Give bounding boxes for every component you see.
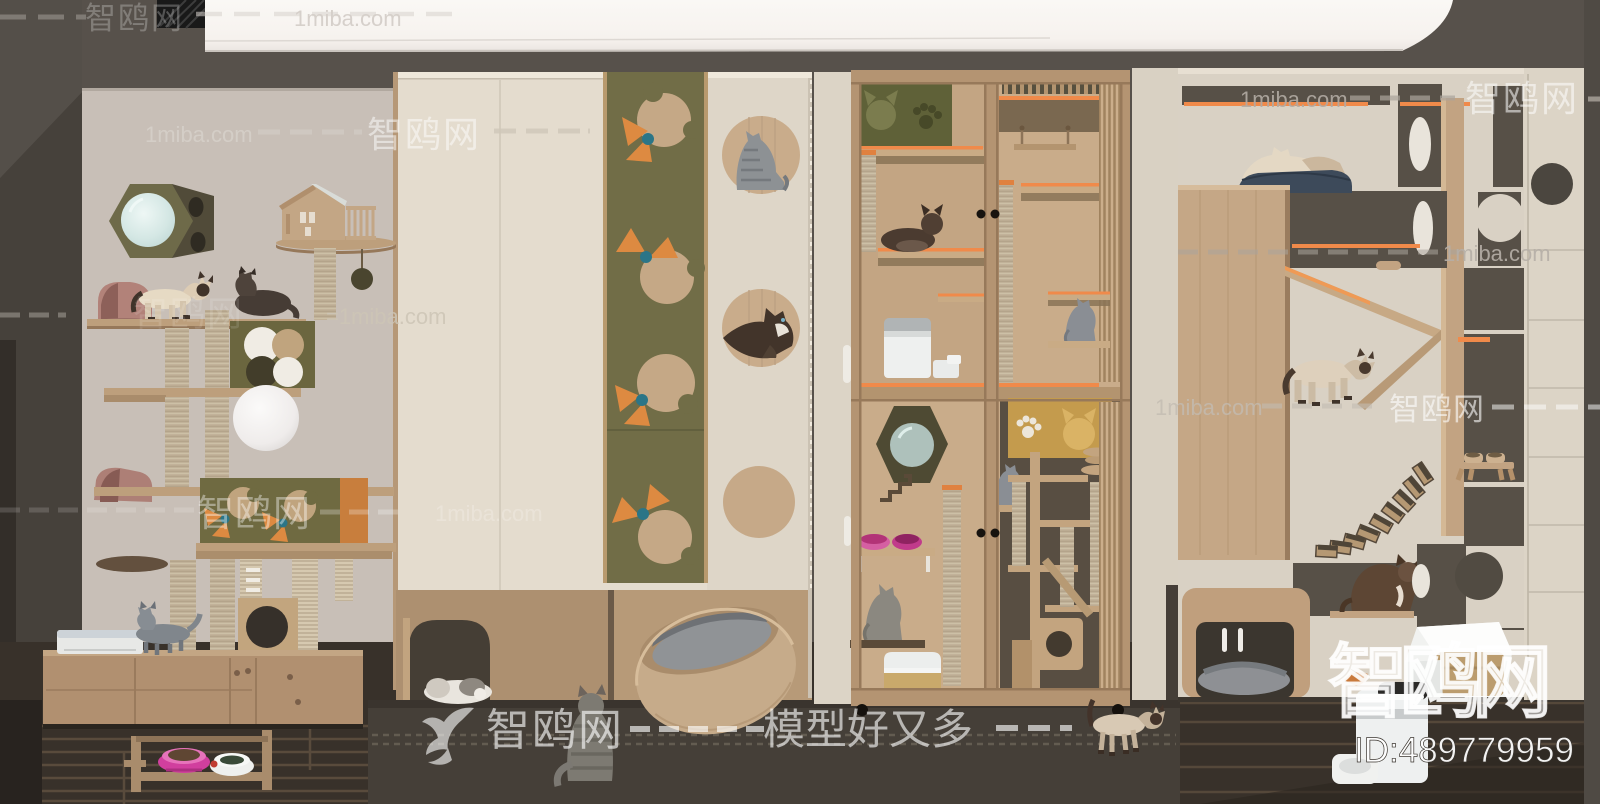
svg-text:1miba.com: 1miba.com bbox=[1240, 87, 1348, 112]
svg-text:1miba.com: 1miba.com bbox=[1155, 395, 1263, 420]
svg-text:智鸥网: 智鸥网 bbox=[197, 493, 311, 534]
svg-text:智鸥网: 智鸥网 bbox=[486, 706, 624, 755]
svg-text:智鸥网: 智鸥网 bbox=[367, 114, 481, 155]
svg-text:智鸥网: 智鸥网 bbox=[1328, 638, 1547, 727]
svg-text:=1miba.com: =1miba.com bbox=[326, 304, 446, 329]
svg-text:智鸥网: 智鸥网 bbox=[1389, 392, 1485, 427]
svg-text:模型好又多: 模型好又多 bbox=[763, 706, 973, 753]
svg-text:智鸥网: 智鸥网 bbox=[1465, 78, 1579, 119]
svg-text:智鸥网: 智鸥网 bbox=[85, 1, 184, 36]
svg-text:1miba.com: 1miba.com bbox=[145, 122, 253, 147]
svg-text:1miba.com: 1miba.com bbox=[1443, 241, 1551, 266]
svg-text:1miba.com: 1miba.com bbox=[294, 6, 402, 31]
svg-text:智鸥网: 智鸥网 bbox=[133, 295, 244, 334]
svg-text:1miba.com: 1miba.com bbox=[435, 501, 543, 526]
svg-text:ID:489779959: ID:489779959 bbox=[1354, 731, 1574, 770]
